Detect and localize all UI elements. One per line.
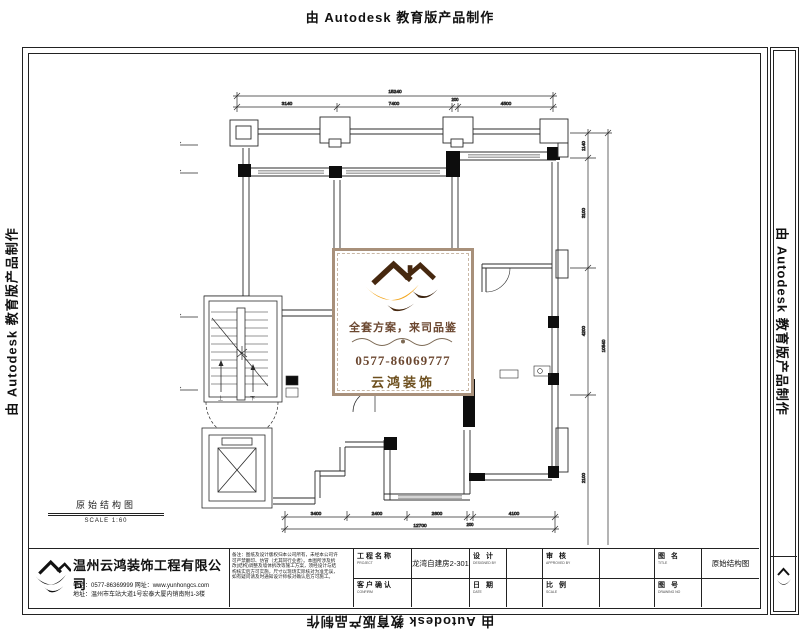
company-logo-icon <box>33 557 71 599</box>
title-block: 温州云鸿装饰工程有限公司 电话：0577-86369999 网址：www.yun… <box>29 548 759 607</box>
field-confirm-value <box>411 578 469 607</box>
stair-down-label: 下 <box>250 396 255 402</box>
field-drawing-no-label: 图 号 DRAWING NO <box>654 578 701 607</box>
cad-sheet: 由 Autodesk 教育版产品制作 由 Autodesk 教育版产品制作 由 … <box>0 0 800 640</box>
field-drawing-no-value <box>701 578 759 607</box>
strip-divider <box>770 556 797 557</box>
dim-label: 4500 <box>501 101 512 107</box>
field-project-label: 工程名称 PROJECT <box>353 549 411 578</box>
plan-scale: SCALE 1:60 <box>48 518 164 524</box>
staircase: 上 下 <box>204 296 282 438</box>
dimensions-right: 1140 3100 4200 2100 10540 <box>570 129 612 545</box>
company-section: 温州云鸿装饰工程有限公司 电话：0577-86369999 网址：www.yun… <box>29 549 229 607</box>
elevator <box>202 428 272 508</box>
stair-up-label: 上 <box>218 395 223 402</box>
field-designer-label: 设 计 DESIGNED BY <box>469 549 506 578</box>
field-ratio-label: 比 例 SCALE <box>542 578 599 607</box>
autodesk-stamp-bottom: 由 Autodesk 教育版产品制作 <box>0 613 800 632</box>
field-approver-value <box>599 549 654 578</box>
dim-label: 2400 <box>372 511 383 517</box>
note-line: 如有疑问请及时通知设计师核对确认后方可施工。 <box>232 574 351 580</box>
autodesk-stamp-left: 由 Autodesk 教育版产品制作 <box>2 207 21 437</box>
strip-logo-mark <box>776 566 792 596</box>
dim-label: 1140 <box>581 141 586 151</box>
binding-strip-inner <box>773 50 796 612</box>
field-approver-label: 审 核 APPROVED BY <box>542 549 599 578</box>
dim-label: 3400 <box>311 511 322 517</box>
dim-label: 10540 <box>601 339 606 352</box>
dim-label: 12700 <box>413 523 427 529</box>
dim-label: 2100 <box>581 472 586 483</box>
field-designer-value <box>506 549 542 578</box>
plan-caption: 原始结构图 SCALE 1:60 <box>48 498 164 524</box>
plan-title: 原始结构图 <box>48 498 164 516</box>
field-drawing-name-value: 原始结构图 <box>701 549 759 578</box>
dimensions-bottom: 3400 2400 2600 200 4100 12700 <box>281 511 559 533</box>
dim-label: 2600 <box>432 511 443 517</box>
dimensions-top: 15240 3140 7400 200 4500 <box>233 89 557 112</box>
autodesk-stamp-top: 由 Autodesk 教育版产品制作 <box>0 7 800 26</box>
field-date-label: 日 期 DATE <box>469 578 506 607</box>
field-ratio-value <box>599 578 654 607</box>
field-confirm-label: 客户确认 CONFIRM <box>353 578 411 607</box>
dim-label: 200 <box>452 97 460 102</box>
dim-label: 15240 <box>388 89 402 95</box>
field-date-value <box>506 578 542 607</box>
company-contact-1: 电话：0577-86369999 网址：www.yunhongcs.com <box>73 583 243 590</box>
dim-label: 7400 <box>389 101 400 107</box>
watermark-card-border <box>337 253 469 391</box>
note-line: 备注：图纸及设计版权归本公司所有，未经本公司许 <box>232 552 351 558</box>
note-line: 改(结构)调整及墙体拆改等施工方案，须经设计与结 <box>232 563 351 569</box>
pilasters <box>230 117 568 157</box>
dim-label: 3140 <box>282 101 293 107</box>
company-contact-2: 地址：温州市车站大道1号宏泰大厦内销南附1-3楼 <box>73 592 243 599</box>
dim-label: 3100 <box>581 207 586 218</box>
field-drawing-name-label: 图 名 TITLE <box>654 549 701 578</box>
dim-label: 4200 <box>581 325 586 336</box>
notes-section: 备注：图纸及设计版权归本公司所有，未经本公司许 可严禁翻印、仿冒（尤其同行业者）… <box>229 549 353 607</box>
dim-label: 4100 <box>509 511 520 517</box>
field-project-value: 龙湾自建房2-301 <box>411 549 469 578</box>
watermark-card: 全套方案，来司品鉴 0577-86069777 云鸿装饰 <box>332 248 474 396</box>
dimensions-left: 1900 4700 2300 <box>180 141 198 394</box>
dim-label: 200 <box>467 522 475 527</box>
